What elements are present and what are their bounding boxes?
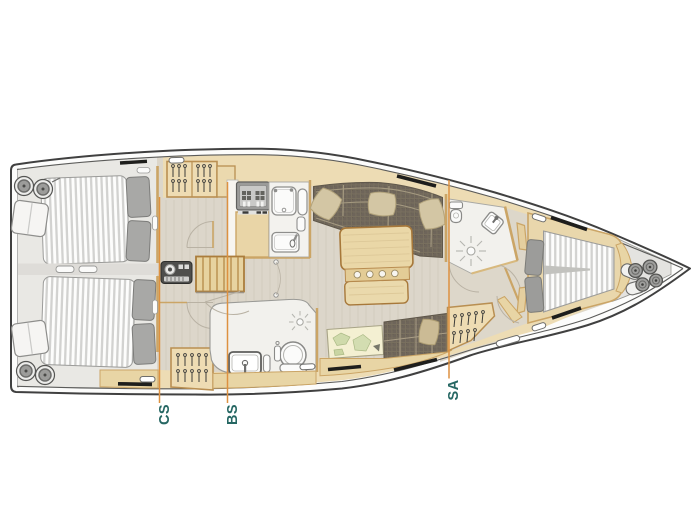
- svg-text:CS: CS: [157, 404, 173, 425]
- svg-text:SA: SA: [446, 379, 462, 400]
- svg-text:BS: BS: [225, 404, 241, 425]
